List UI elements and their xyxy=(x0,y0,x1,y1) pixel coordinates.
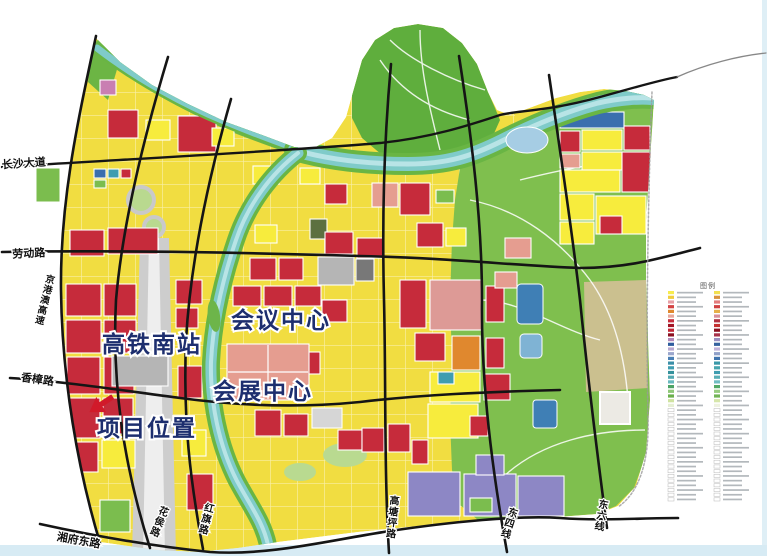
legend-swatch xyxy=(714,394,720,397)
legend-swatch xyxy=(714,296,720,299)
legend-label-line xyxy=(677,311,696,313)
legend-swatch xyxy=(668,451,674,454)
legend-swatch xyxy=(714,315,720,318)
label-station: 高铁南站 xyxy=(102,331,202,357)
legend-swatch xyxy=(668,498,674,501)
legend-label-line xyxy=(677,376,703,378)
legend-swatch xyxy=(668,366,674,369)
right-blue-strip xyxy=(762,0,767,556)
legend-swatch xyxy=(668,347,674,350)
legend-swatch xyxy=(714,291,720,294)
legend-label-line xyxy=(677,306,703,308)
legend-swatch xyxy=(668,399,674,402)
legend-swatch xyxy=(668,385,674,388)
legend-swatch xyxy=(714,470,720,473)
legend-label-line xyxy=(677,494,696,496)
legend-swatch xyxy=(714,362,720,365)
legend-label-line xyxy=(677,372,696,374)
legend-swatch xyxy=(668,484,674,487)
label-conference-center: 会议中心 xyxy=(231,307,331,333)
legend-swatch xyxy=(668,465,674,468)
legend-label-line xyxy=(677,400,696,402)
legend-swatch xyxy=(714,498,720,501)
legend-swatch xyxy=(714,385,720,388)
legend-label-line xyxy=(677,414,696,416)
urban-planning-map: 高铁南站 会议中心 会展中心 项目位置 长沙大道 劳动路 京港澳高速 香樟路 湘… xyxy=(0,0,767,556)
legend-label-line xyxy=(677,466,696,468)
legend-swatch xyxy=(714,432,720,435)
legend-swatch xyxy=(668,488,674,491)
legend-swatch xyxy=(714,352,720,355)
legend-label-line xyxy=(677,353,696,355)
legend-swatch xyxy=(714,404,720,407)
label-project-location: 项目位置 xyxy=(97,415,197,441)
legend-swatch xyxy=(714,474,720,477)
legend-label-line xyxy=(723,400,742,402)
legend-label-line xyxy=(677,499,696,501)
legend-label-line xyxy=(677,409,696,411)
legend-swatch xyxy=(714,451,720,454)
legend-label-line xyxy=(677,329,696,331)
legend-swatch xyxy=(668,437,674,440)
legend-label-line xyxy=(677,419,703,421)
legend-label-line xyxy=(723,466,742,468)
legend-label-line xyxy=(723,428,742,430)
legend-label-line xyxy=(677,489,703,491)
legend-swatch xyxy=(668,479,674,482)
legend-swatch xyxy=(668,338,674,341)
legend-swatch xyxy=(668,446,674,449)
legend-swatch xyxy=(714,390,720,393)
legend-swatch xyxy=(668,362,674,365)
legend-swatch xyxy=(714,441,720,444)
legend-label-line xyxy=(723,438,742,440)
legend-label-line xyxy=(723,306,749,308)
legend-swatch xyxy=(668,432,674,435)
legend-swatch xyxy=(668,319,674,322)
legend-swatch xyxy=(668,390,674,393)
legend-swatch xyxy=(714,409,720,412)
legend-label-line xyxy=(677,428,696,430)
legend-swatch xyxy=(668,380,674,383)
legend-label-line xyxy=(723,386,742,388)
legend-label-line xyxy=(677,386,696,388)
legend-label-line xyxy=(677,433,703,435)
legend-swatch xyxy=(714,488,720,491)
legend-swatch xyxy=(714,446,720,449)
legend-label-line xyxy=(723,376,749,378)
legend-swatch xyxy=(714,371,720,374)
legend-label-line xyxy=(723,494,742,496)
legend-label-line xyxy=(677,480,696,482)
legend-swatch xyxy=(668,376,674,379)
legend-label-line xyxy=(723,456,742,458)
legend-label-line xyxy=(723,480,742,482)
legend-label-line xyxy=(677,475,703,477)
legend-swatch xyxy=(714,437,720,440)
legend-swatch xyxy=(714,343,720,346)
legend-label-line xyxy=(677,452,696,454)
legend-label-line xyxy=(723,409,742,411)
planning-map-page: 高铁南站 会议中心 会展中心 项目位置 长沙大道 劳动路 京港澳高速 香樟路 湘… xyxy=(0,0,767,556)
legend-label-line xyxy=(677,461,703,463)
legend-label-line xyxy=(723,325,742,327)
legend-swatch xyxy=(668,460,674,463)
legend-label-line xyxy=(677,367,696,369)
legend-label-line xyxy=(677,405,703,407)
legend-swatch xyxy=(714,329,720,332)
legend-swatch xyxy=(714,465,720,468)
legend-swatch xyxy=(714,310,720,313)
legend-swatch xyxy=(714,347,720,350)
legend-swatch xyxy=(668,441,674,444)
legend-label-line xyxy=(723,499,742,501)
legend-label-line xyxy=(723,405,749,407)
legend-label-line xyxy=(677,348,703,350)
legend-label-line xyxy=(677,470,696,472)
legend-label-line xyxy=(723,485,742,487)
legend-label-line xyxy=(723,311,742,313)
legend-swatch xyxy=(668,404,674,407)
legend-label-line xyxy=(723,461,749,463)
legend-swatch xyxy=(714,324,720,327)
legend-swatch xyxy=(714,413,720,416)
legend-swatch xyxy=(714,460,720,463)
legend-swatch xyxy=(668,493,674,496)
legend-label-line xyxy=(723,442,742,444)
legend-label-line xyxy=(723,301,742,303)
legend-label-line xyxy=(723,315,742,317)
label-exhibition-center: 会展中心 xyxy=(213,378,313,404)
legend-swatch xyxy=(668,371,674,374)
legend-label-line xyxy=(723,475,749,477)
legend-label-line xyxy=(677,381,696,383)
legend-label-line xyxy=(723,470,742,472)
legend-label-line xyxy=(677,292,703,294)
legend-swatch xyxy=(668,413,674,416)
legend-label-line xyxy=(677,456,696,458)
legend-label-line xyxy=(723,358,742,360)
legend-label-line xyxy=(723,353,742,355)
west-green-block xyxy=(36,168,60,202)
legend-swatch xyxy=(714,366,720,369)
legend-label-line xyxy=(677,339,696,341)
legend-label-line xyxy=(723,320,749,322)
legend-swatch xyxy=(668,423,674,426)
legend-swatch xyxy=(668,310,674,313)
legend-label-line xyxy=(677,362,703,364)
legend-swatch xyxy=(714,399,720,402)
legend-label-line xyxy=(677,438,696,440)
orange-block xyxy=(452,336,480,370)
legend-swatch xyxy=(668,343,674,346)
legend-label-line xyxy=(723,395,742,397)
legend-label-line xyxy=(677,320,703,322)
legend-label-line xyxy=(677,358,696,360)
legend-swatch xyxy=(714,380,720,383)
legend-label-line xyxy=(677,297,696,299)
legend-label-line xyxy=(723,391,749,393)
legend-label-line xyxy=(677,442,696,444)
legend-swatch xyxy=(668,394,674,397)
legend-label-line xyxy=(723,419,749,421)
legend-swatch xyxy=(668,291,674,294)
legend-swatch xyxy=(714,333,720,336)
legend-label-line xyxy=(723,423,742,425)
legend-label-line xyxy=(723,489,749,491)
legend-swatch xyxy=(668,329,674,332)
bottom-blue-strip xyxy=(0,545,767,556)
legend-swatch xyxy=(714,456,720,459)
legend-swatch xyxy=(714,357,720,360)
legend-label-line xyxy=(677,447,703,449)
legend-label-line xyxy=(677,344,696,346)
legend-swatch xyxy=(668,470,674,473)
legend-swatch xyxy=(714,423,720,426)
legend-swatch xyxy=(714,479,720,482)
legend-swatch xyxy=(668,324,674,327)
legend-swatch xyxy=(668,357,674,360)
legend-label-line xyxy=(677,423,696,425)
legend-swatch xyxy=(668,427,674,430)
legend-label-line xyxy=(723,339,742,341)
legend-swatch xyxy=(714,418,720,421)
legend-swatch xyxy=(668,315,674,318)
legend-label-line xyxy=(677,485,696,487)
facility-square xyxy=(600,392,630,424)
legend-swatch xyxy=(714,427,720,430)
legend-title: 图例 xyxy=(700,281,716,290)
legend-label-line xyxy=(723,447,749,449)
legend-label-line xyxy=(723,344,742,346)
legend-label-line xyxy=(677,395,696,397)
legend-label-line xyxy=(723,372,742,374)
legend-label-line xyxy=(723,367,742,369)
legend-label-line xyxy=(677,325,696,327)
station-plaza xyxy=(112,356,168,386)
legend-swatch xyxy=(668,296,674,299)
legend-swatch xyxy=(714,338,720,341)
legend-swatch xyxy=(668,300,674,303)
legend-label-line xyxy=(723,452,742,454)
legend-label-line xyxy=(723,433,749,435)
legend-label-line xyxy=(723,348,749,350)
legend-swatch xyxy=(714,493,720,496)
legend-swatch xyxy=(668,333,674,336)
legend-label-line xyxy=(677,315,696,317)
legend-swatch xyxy=(668,418,674,421)
legend-swatch xyxy=(668,474,674,477)
legend-label-line xyxy=(723,381,742,383)
legend-label-line xyxy=(723,297,742,299)
legend-swatch xyxy=(714,376,720,379)
legend-label-line xyxy=(677,391,703,393)
legend-swatch xyxy=(668,409,674,412)
legend-swatch xyxy=(668,305,674,308)
legend-label-line xyxy=(723,414,742,416)
legend-swatch xyxy=(714,484,720,487)
legend-label-line xyxy=(677,334,703,336)
legend-label-line xyxy=(723,334,749,336)
legend-label-line xyxy=(723,329,742,331)
legend-swatch xyxy=(714,300,720,303)
legend-label-line xyxy=(723,362,749,364)
legend-swatch xyxy=(714,319,720,322)
legend-label-line xyxy=(677,301,696,303)
legend-swatch xyxy=(668,352,674,355)
legend-swatch xyxy=(668,456,674,459)
legend-label-line xyxy=(723,292,749,294)
legend-swatch xyxy=(714,305,720,308)
land-area xyxy=(55,24,654,556)
